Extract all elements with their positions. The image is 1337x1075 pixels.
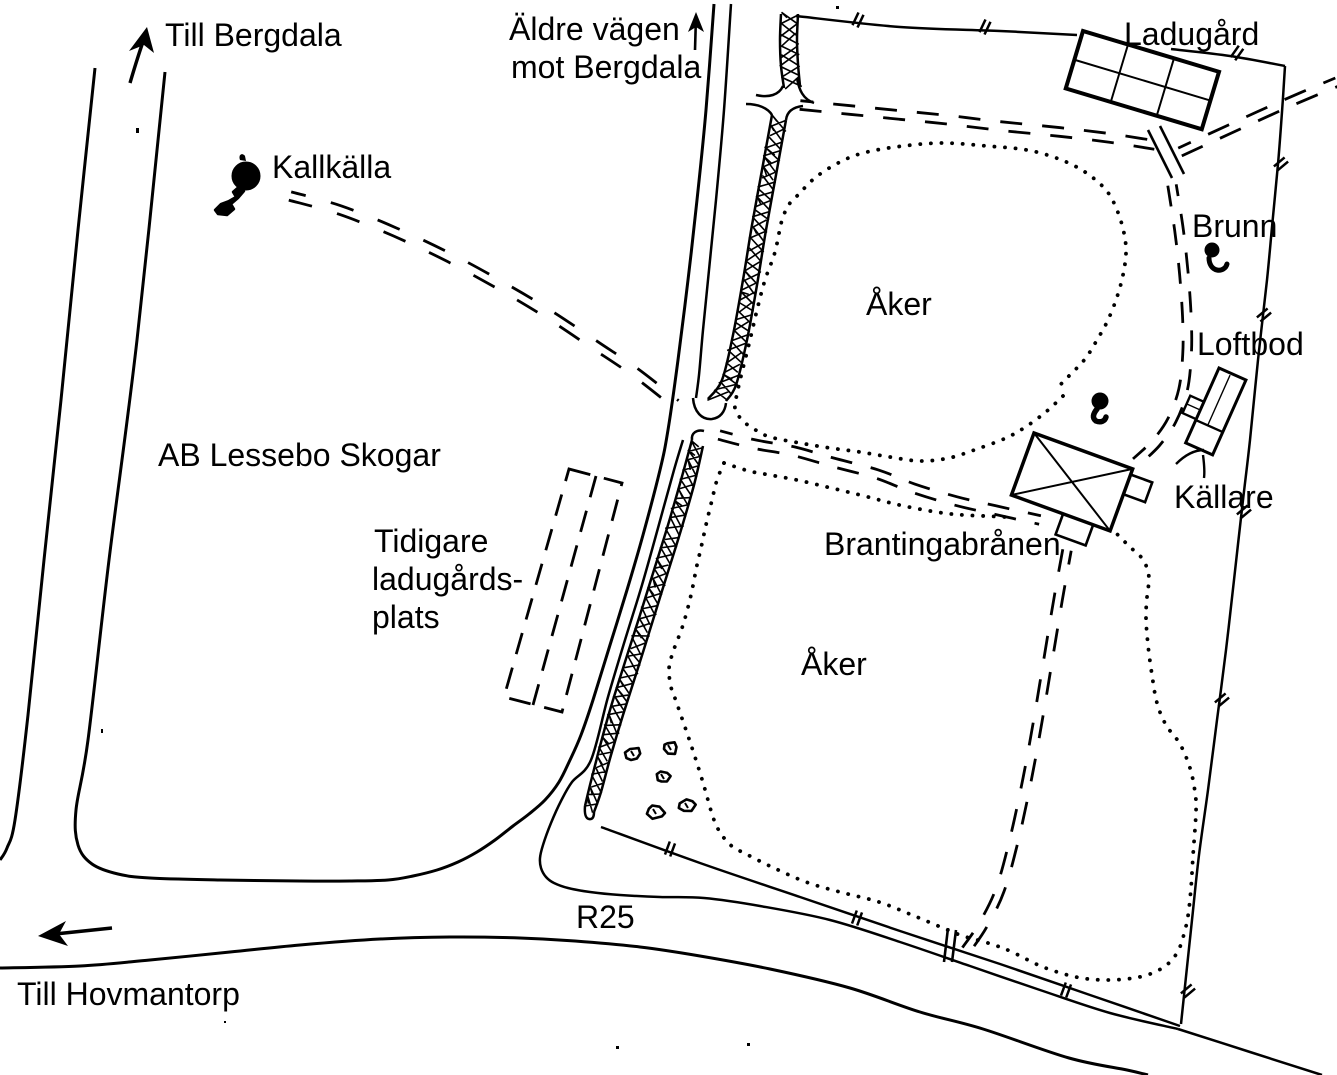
svg-text:Brantingabrånen: Brantingabrånen <box>824 526 1061 562</box>
svg-text:Kallkälla: Kallkälla <box>272 149 391 185</box>
svg-text:Loftbod: Loftbod <box>1197 326 1304 362</box>
svg-text:AB Lessebo Skogar: AB Lessebo Skogar <box>158 437 441 473</box>
svg-text:Till Hovmantorp: Till Hovmantorp <box>17 976 240 1012</box>
svg-text:Till Bergdala: Till Bergdala <box>165 17 342 53</box>
svg-text:mot Bergdala: mot Bergdala <box>511 49 702 85</box>
svg-text:Äldre vägen: Äldre vägen <box>509 11 680 47</box>
svg-text:Åker: Åker <box>866 286 932 322</box>
svg-text:Källare: Källare <box>1174 479 1274 515</box>
svg-text:Tidigare: Tidigare <box>374 523 488 559</box>
svg-text:Brunn: Brunn <box>1192 208 1277 244</box>
svg-text:R25: R25 <box>576 899 635 935</box>
svg-text:Ladugård: Ladugård <box>1124 16 1259 52</box>
svg-text:Åker: Åker <box>801 646 867 682</box>
svg-text:ladugårds-: ladugårds- <box>372 561 523 597</box>
svg-text:plats: plats <box>372 599 440 635</box>
